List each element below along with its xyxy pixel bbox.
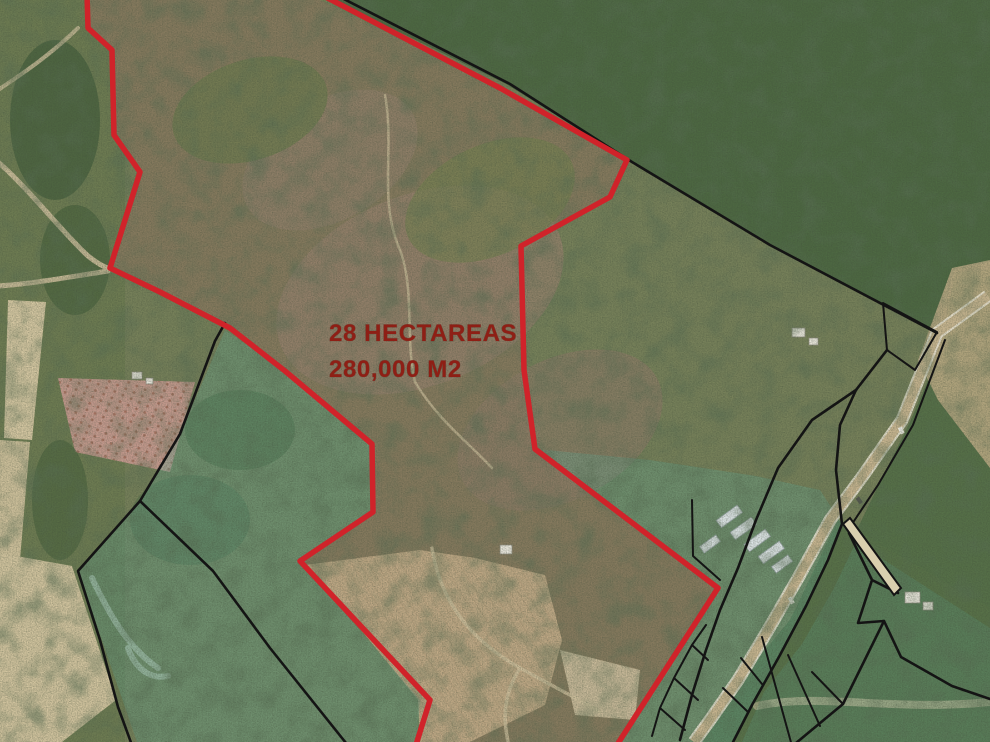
- satellite-map: 28 HECTAREAS 280,000 M2: [0, 0, 990, 742]
- grain-texture: [0, 0, 990, 742]
- area-label-line1: 28 HECTAREAS: [329, 320, 517, 347]
- satellite-map-canvas: 28 HECTAREAS 280,000 M2: [0, 0, 990, 742]
- area-label-line2: 280,000 M2: [329, 356, 462, 383]
